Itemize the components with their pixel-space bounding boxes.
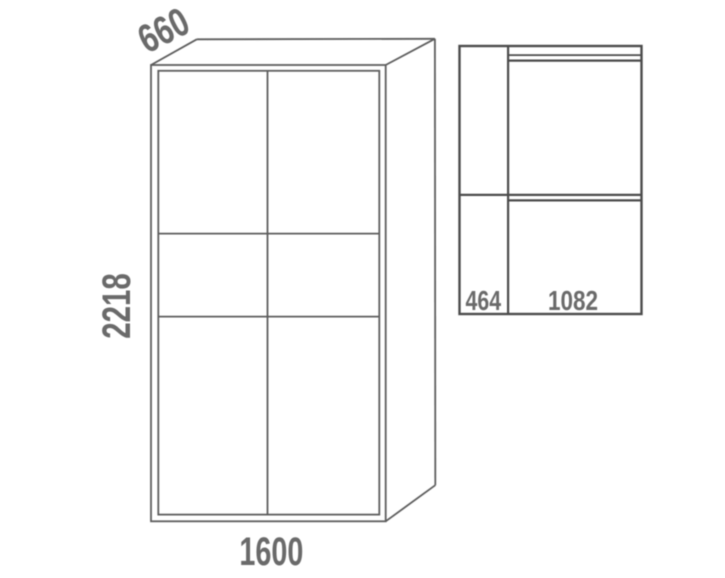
svg-text:1082: 1082 bbox=[548, 285, 598, 316]
svg-text:1600: 1600 bbox=[239, 530, 303, 574]
svg-text:2218: 2218 bbox=[95, 273, 139, 339]
svg-text:464: 464 bbox=[466, 285, 502, 316]
